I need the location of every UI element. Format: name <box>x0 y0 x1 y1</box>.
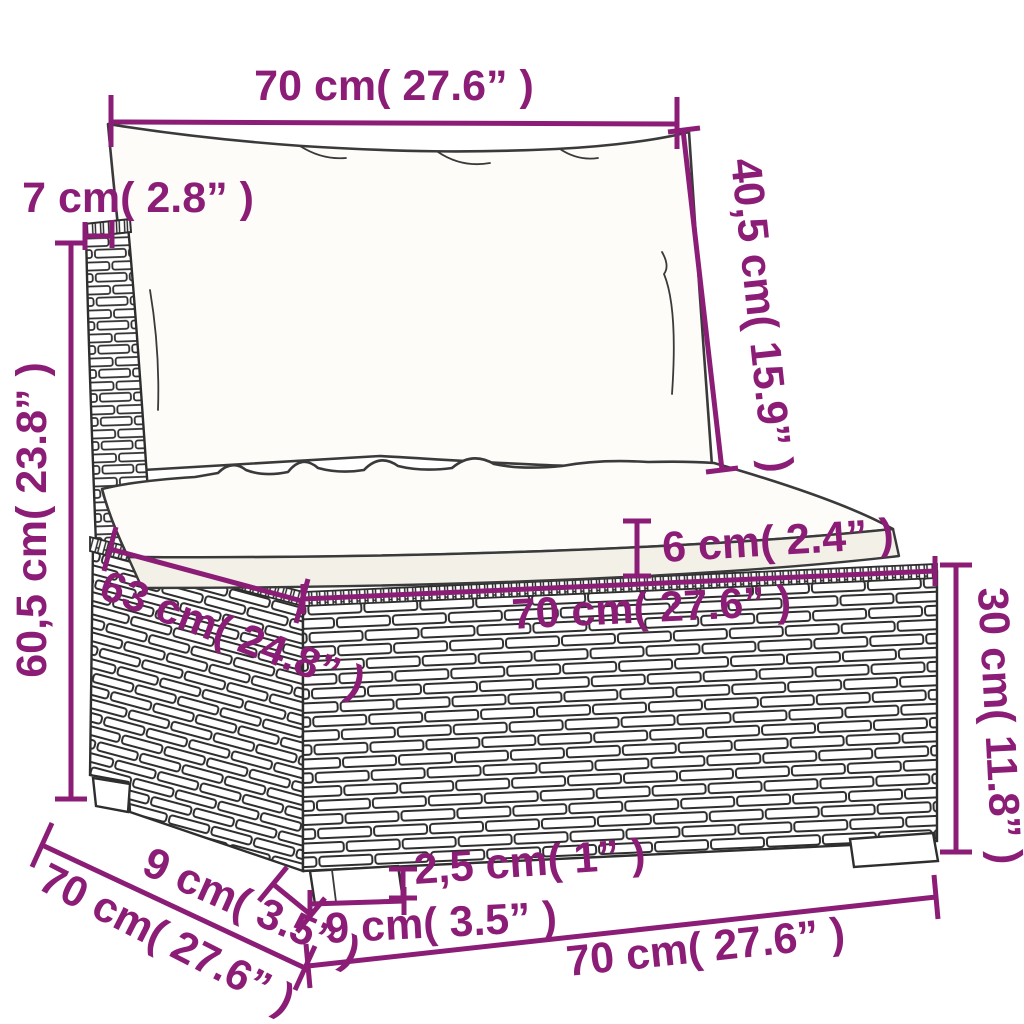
front-right-leg <box>850 833 938 867</box>
dim-base-height-label: 30 cm( 11.8” ) <box>968 586 1024 865</box>
dim-backrest-height: 60,5 cm( 23.8” ) <box>8 243 87 799</box>
diagram-canvas: 70 cm( 27.6” ) 7 cm( 2.8” ) 40,5 cm( 15.… <box>0 0 1024 1024</box>
sofa-dimension-diagram: 70 cm( 27.6” ) 7 cm( 2.8” ) 40,5 cm( 15.… <box>0 0 1024 1024</box>
dim-frame-top-depth-label: 7 cm( 2.8” ) <box>22 174 254 222</box>
back-left-leg <box>93 778 130 812</box>
dim-base-height: 30 cm( 11.8” ) <box>940 565 1024 865</box>
dim-back-width-label: 70 cm( 27.6” ) <box>254 62 534 110</box>
dim-base-height-line <box>940 565 972 852</box>
dim-back-cushion-height-label: 40,5 cm( 15.9” ) <box>721 156 802 475</box>
dim-backrest-height-line <box>55 243 87 799</box>
dim-backrest-height-label: 60,5 cm( 23.8” ) <box>8 362 56 678</box>
